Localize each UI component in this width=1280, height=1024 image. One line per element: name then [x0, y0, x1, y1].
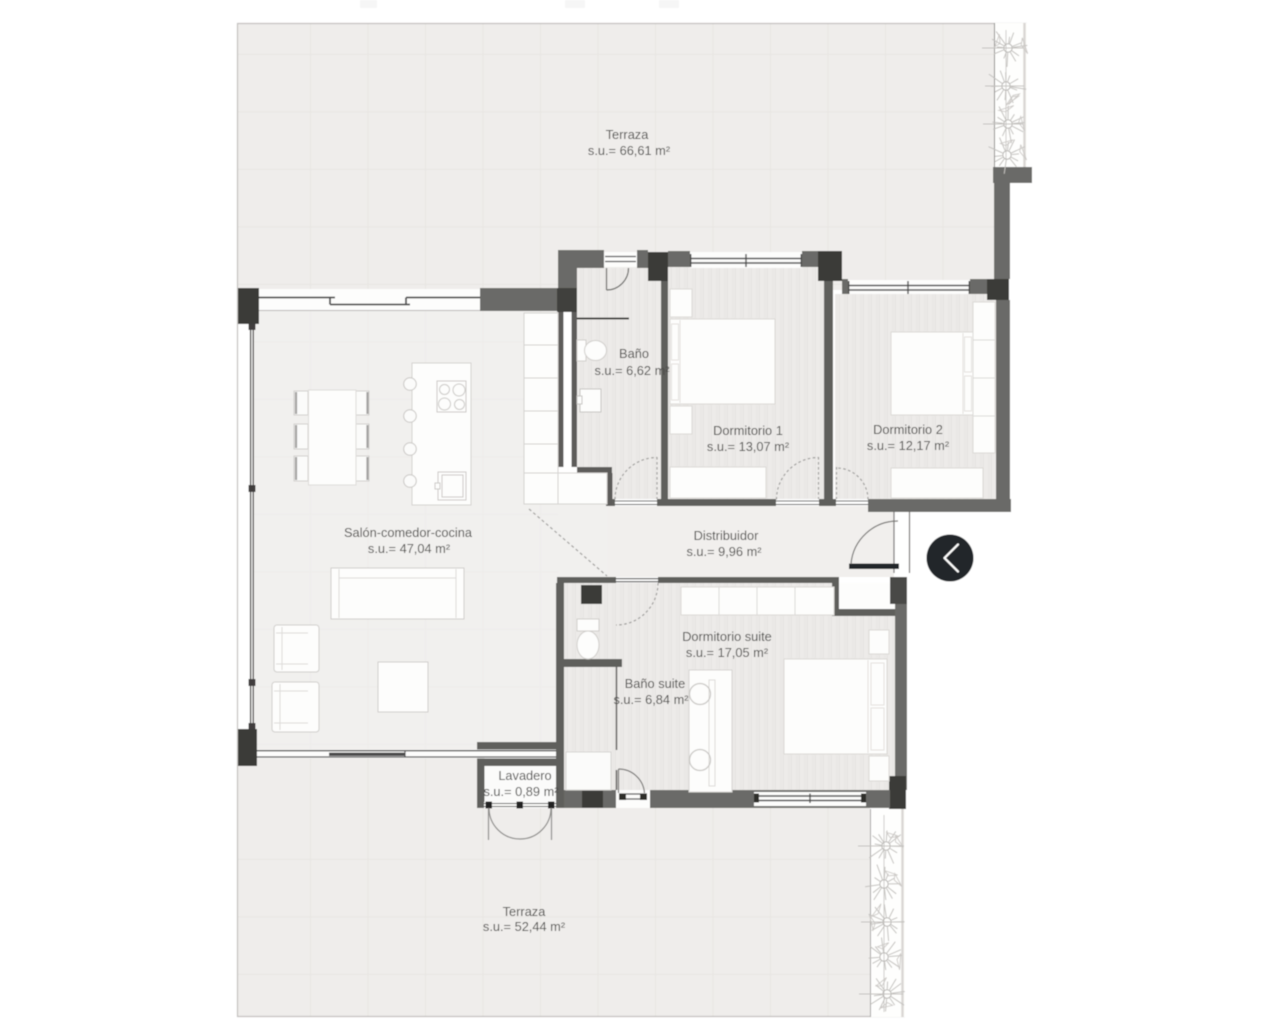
svg-text:s.u.= 47,04 m²: s.u.= 47,04 m² [368, 541, 451, 556]
svg-text:Baño suite: Baño suite [625, 676, 685, 691]
svg-text:Dormitorio 1: Dormitorio 1 [713, 423, 783, 438]
svg-text:s.u.= 12,17 m²: s.u.= 12,17 m² [867, 438, 950, 453]
svg-text:s.u.= 13,07 m²: s.u.= 13,07 m² [707, 439, 790, 454]
svg-text:Salón-comedor-cocina: Salón-comedor-cocina [344, 525, 473, 540]
svg-text:s.u.= 0,89 m²: s.u.= 0,89 m² [483, 784, 559, 799]
svg-text:s.u.= 6,84 m²: s.u.= 6,84 m² [613, 692, 689, 707]
svg-text:Lavadero: Lavadero [498, 768, 551, 783]
svg-text:Dormitorio suite: Dormitorio suite [682, 629, 772, 644]
svg-text:s.u.= 52,44 m²: s.u.= 52,44 m² [483, 919, 566, 934]
svg-text:Terraza: Terraza [606, 127, 650, 142]
svg-text:s.u.= 6,62 m²: s.u.= 6,62 m² [594, 363, 670, 378]
svg-text:s.u.= 17,05 m²: s.u.= 17,05 m² [686, 645, 769, 660]
svg-text:Distribuidor: Distribuidor [694, 528, 759, 543]
svg-text:Baño: Baño [619, 346, 649, 361]
svg-text:Dormitorio 2: Dormitorio 2 [873, 422, 943, 437]
svg-text:s.u.= 66,61 m²: s.u.= 66,61 m² [588, 143, 671, 158]
svg-text:s.u.= 9,96 m²: s.u.= 9,96 m² [686, 544, 762, 559]
svg-text:Terraza: Terraza [503, 904, 547, 919]
